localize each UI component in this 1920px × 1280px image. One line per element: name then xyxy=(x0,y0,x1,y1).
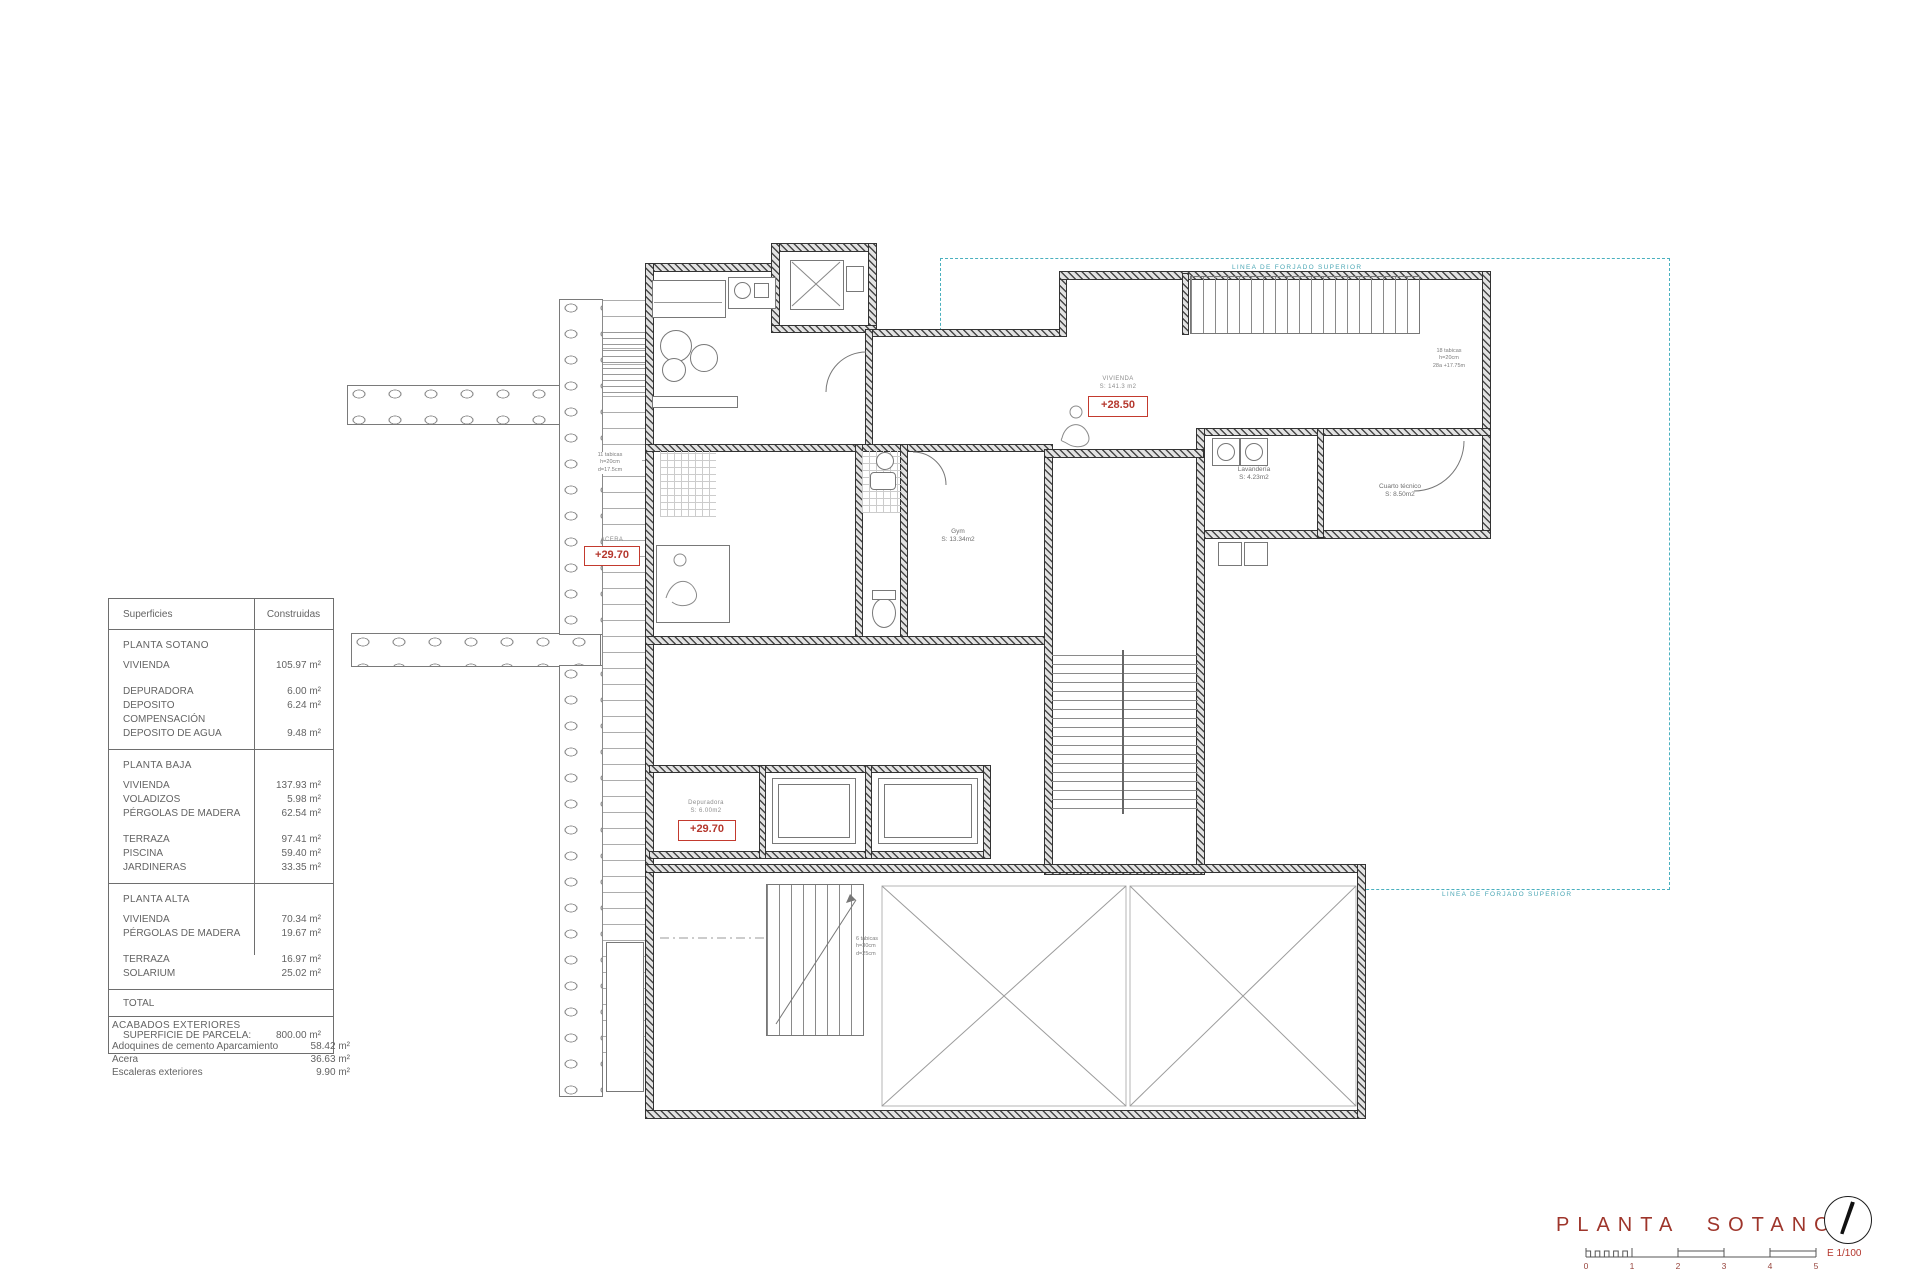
table-divider xyxy=(254,599,255,955)
exterior-stairs-top xyxy=(603,332,645,398)
acera-caption: ACERA xyxy=(584,537,640,545)
floor-garage xyxy=(646,865,1365,1118)
garage-stairs xyxy=(766,884,864,1036)
row-value: 33.35 m² xyxy=(255,861,333,875)
vivienda-caption-line: S: 141.3 m2 xyxy=(1082,384,1154,392)
wall-garage-bottom xyxy=(646,1111,1365,1118)
stair-note-line: d=17.5cm xyxy=(578,467,642,474)
row-label: DEPOSITO DE AGUA xyxy=(123,727,255,741)
wall-elevator-top xyxy=(772,244,876,251)
table-row: VIVIENDA70.34 m² xyxy=(123,913,333,927)
washer-drum-1 xyxy=(1217,443,1235,461)
wall-hall-top xyxy=(870,330,1066,336)
vivienda-caption: VIVIENDA S: 141.3 m2 xyxy=(1082,376,1154,392)
sheet-title: PLANTA SOTANO xyxy=(1556,1214,1836,1237)
cuarto-area: S: 8.50m2 xyxy=(1358,491,1442,499)
row-value: 36.63 m² xyxy=(311,1053,350,1066)
wall-stairwell-right xyxy=(1197,429,1204,874)
wall-elevator-bottom xyxy=(772,326,876,332)
kitchen-sink xyxy=(734,282,751,299)
section-title: PLANTA ALTA xyxy=(123,894,333,905)
table-row: DEPOSITO DE AGUA9.48 m² xyxy=(123,727,333,741)
total-row: TOTAL xyxy=(109,990,333,1017)
acabados-row: Adoquines de cemento Aparcamiento58.42 m… xyxy=(112,1040,350,1053)
table-row: VOLADIZOS5.98 m² xyxy=(123,793,333,807)
toilet-bowl xyxy=(872,598,896,628)
row-value: 105.97 m² xyxy=(255,659,333,673)
scale-tick-label: 1 xyxy=(1630,1261,1635,1271)
north-needle xyxy=(1840,1201,1855,1236)
col-construidas: Construidas xyxy=(254,609,333,620)
row-value: 5.98 m² xyxy=(255,793,333,807)
scale-tick-label: 4 xyxy=(1768,1261,1773,1271)
stairwell-treads xyxy=(1052,655,1198,810)
row-value: 6.24 m² xyxy=(255,699,333,727)
sauna-tiles xyxy=(660,451,716,517)
elevator-car xyxy=(790,260,844,310)
table-row: SOLARIUM25.02 m² xyxy=(123,967,333,981)
gym-area: S: 13.34m2 xyxy=(908,536,1008,544)
sofa xyxy=(652,280,726,318)
room-label-lavanderia: Lavandería S: 4.23m2 xyxy=(1219,466,1289,483)
row-label: Escaleras exteriores xyxy=(112,1066,316,1079)
table-row: TERRAZA97.41 m² xyxy=(123,833,333,847)
wall-wing-right xyxy=(1483,272,1490,538)
table-row: TERRAZA16.97 m² xyxy=(123,953,333,967)
section-planta-baja: PLANTA BAJA VIVIENDA137.93 m² VOLADIZOS5… xyxy=(109,750,333,884)
wall-living-hall-divider xyxy=(866,330,872,448)
wall-deposit-div2 xyxy=(866,766,871,858)
table-row: PÉRGOLAS DE MADERA19.67 m² xyxy=(123,927,333,941)
scale-steps xyxy=(1678,1251,1816,1257)
wall-deposits-top xyxy=(650,766,990,772)
row-label: PÉRGOLAS DE MADERA xyxy=(123,807,255,821)
wall-left-main xyxy=(646,264,653,1118)
row-value: 137.93 m² xyxy=(255,779,333,793)
row-value: 19.67 m² xyxy=(255,927,333,941)
table-row: DEPURADORA6.00 m² xyxy=(123,685,333,699)
depuradora-level: +29.70 xyxy=(678,820,736,841)
stair-note-line: h=30cm xyxy=(856,943,920,950)
stair-note-line: h=20cm xyxy=(578,459,642,466)
stair-note-line: 18 tabicas xyxy=(1414,348,1484,355)
cuarto-name: Cuarto técnico xyxy=(1358,483,1442,491)
wall-elevator-right xyxy=(869,244,876,332)
row-value: 59.40 m² xyxy=(255,847,333,861)
room-label-cuarto-tecnico: Cuarto técnico S: 8.50m2 xyxy=(1358,483,1442,500)
wall-top-living xyxy=(646,264,778,271)
row-label: VOLADIZOS xyxy=(123,793,255,807)
appliance-box-2 xyxy=(1244,542,1268,566)
staircase-upper xyxy=(1190,276,1420,334)
total-label: TOTAL xyxy=(123,998,154,1009)
row-value: 97.41 m² xyxy=(255,833,333,847)
scale-tick-label: 2 xyxy=(1676,1261,1681,1271)
stair-note-line: 6 tabicas xyxy=(856,936,920,943)
planter-box xyxy=(606,942,644,1092)
washer-drum-2 xyxy=(1245,443,1263,461)
wall-wing-bottom xyxy=(1197,531,1490,538)
acabados-row: Escaleras exteriores9.90 m² xyxy=(112,1066,350,1079)
wall-room-divider xyxy=(1318,429,1323,537)
row-label: TERRAZA xyxy=(123,953,255,967)
row-value: 16.97 m² xyxy=(255,953,333,967)
scale-tick-label: 3 xyxy=(1722,1261,1727,1271)
sofa-seat-line xyxy=(654,302,722,303)
row-label: JARDINERAS xyxy=(123,861,255,875)
wall-garage-right xyxy=(1358,865,1365,1118)
scale-bar: 0 1 2 3 4 5 xyxy=(1582,1240,1832,1274)
row-value: 70.34 m² xyxy=(255,913,333,927)
table-circle-2 xyxy=(690,344,718,372)
scale-tick-label: 5 xyxy=(1814,1261,1819,1271)
stair-note-line: 11 tabicas xyxy=(578,452,642,459)
lavanderia-name: Lavandería xyxy=(1219,466,1289,474)
table-row: VIVIENDA105.97 m² xyxy=(123,659,333,673)
row-label: DEPOSITO COMPENSACIÓN xyxy=(123,699,255,727)
room-label-gym: Gym S: 13.34m2 xyxy=(908,528,1008,545)
section-planta-sotano: PLANTA SOTANO VIVIENDA105.97 m² DEPURADO… xyxy=(109,630,333,750)
wall-deposits-bottom xyxy=(650,852,990,858)
table-row: VIVIENDA137.93 m² xyxy=(123,779,333,793)
row-value: 6.00 m² xyxy=(255,685,333,699)
table-row: PÉRGOLAS DE MADERA62.54 m² xyxy=(123,807,333,821)
wall-wing-rooms-top xyxy=(1197,429,1490,435)
col-superficies: Superficies xyxy=(109,609,254,620)
massage-table xyxy=(656,545,730,623)
wall-rooms-row-bottom xyxy=(646,637,1052,644)
row-label: DEPURADORA xyxy=(123,685,255,699)
vivienda-level: +28.50 xyxy=(1088,396,1148,417)
row-value: 62.54 m² xyxy=(255,807,333,821)
row-value: 9.48 m² xyxy=(255,727,333,741)
stone-wall-vertical-lower xyxy=(560,666,602,1096)
table-row: JARDINERAS33.35 m² xyxy=(123,861,333,875)
bath-sink xyxy=(876,452,894,470)
stair-note-line: 28a +17.75m xyxy=(1414,363,1484,370)
scale-comb xyxy=(1586,1251,1627,1257)
forjado-label-bottom: LINEA DE FORJADO SUPERIOR xyxy=(1442,891,1572,898)
acabados-row: Acera36.63 m² xyxy=(112,1053,350,1066)
depuradora-caption: Depuradora S: 6.00m2 xyxy=(670,800,742,816)
stairwell-stringer xyxy=(1122,650,1124,814)
stair-note-garage: 6 tabicas h=30cm d=25cm xyxy=(856,936,920,958)
table-row: PISCINA59.40 m² xyxy=(123,847,333,861)
row-label: VIVIENDA xyxy=(123,913,255,927)
stair-note-exterior: 11 tabicas h=20cm d=17.5cm xyxy=(578,452,642,474)
stair-note-interior: 18 tabicas h=20cm 28a +17.75m xyxy=(1414,348,1484,370)
deposit-tank-1-inner xyxy=(778,784,850,838)
row-value: 25.02 m² xyxy=(255,967,333,981)
table-header: Superficies Construidas xyxy=(109,599,333,630)
north-arrow xyxy=(1824,1196,1872,1244)
gym-name: Gym xyxy=(908,528,1008,536)
row-label: VIVIENDA xyxy=(123,659,255,673)
deposit-tank-2-inner xyxy=(884,784,972,838)
wall-stairwell-left xyxy=(1045,450,1052,874)
row-label: SOLARIUM xyxy=(123,967,255,981)
appliance-box-1 xyxy=(1218,542,1242,566)
row-value: 9.90 m² xyxy=(316,1066,350,1079)
scale-text: E 1/100 xyxy=(1827,1248,1861,1259)
sideboard xyxy=(652,396,738,408)
vivienda-caption-line: VIVIENDA xyxy=(1082,376,1154,384)
section-planta-alta: PLANTA ALTA VIVIENDA70.34 m² PÉRGOLAS DE… xyxy=(109,884,333,990)
scale-tick-label: 0 xyxy=(1584,1261,1589,1271)
section-title: PLANTA SOTANO xyxy=(123,640,333,651)
row-value: 58.42 m² xyxy=(311,1040,350,1053)
wall-step-up xyxy=(1060,272,1066,336)
acera-level: +29.70 xyxy=(584,546,640,566)
table-circle-3 xyxy=(662,358,686,382)
wall-stairwell-top xyxy=(1045,450,1203,457)
elevator-motor xyxy=(846,266,864,292)
acabados-title: ACABADOS EXTERIORES xyxy=(112,1020,350,1031)
depuradora-caption-line: S: 6.00m2 xyxy=(670,808,742,816)
row-label: PÉRGOLAS DE MADERA xyxy=(123,927,255,941)
stair-note-line: d=25cm xyxy=(856,951,920,958)
floor-hall xyxy=(866,330,1066,456)
surfaces-table: Superficies Construidas PLANTA SOTANO VI… xyxy=(108,598,334,1054)
section-title: PLANTA BAJA xyxy=(123,760,333,771)
row-label: PISCINA xyxy=(123,847,255,861)
kitchen-hob xyxy=(754,283,769,298)
wall-stair-enclosure xyxy=(1183,274,1188,334)
floor-plan-sheet: LINEA DE FORJADO SUPERIOR LINEA DE FORJA… xyxy=(0,0,1920,1280)
scale-ticks xyxy=(1586,1248,1816,1257)
table-row: DEPOSITO COMPENSACIÓN6.24 m² xyxy=(123,699,333,727)
toilet-tank xyxy=(872,590,896,600)
lavanderia-area: S: 4.23m2 xyxy=(1219,474,1289,482)
bath-vanity xyxy=(870,472,896,490)
stair-note-line: h=20cm xyxy=(1414,355,1484,362)
row-label: VIVIENDA xyxy=(123,779,255,793)
wall-deposit-div1 xyxy=(760,766,765,858)
depuradora-caption-line: Depuradora xyxy=(670,800,742,808)
wall-garage-top xyxy=(646,865,1365,872)
row-label: TERRAZA xyxy=(123,833,255,847)
stone-wall-mid-left xyxy=(352,634,600,666)
wall-deposit-right xyxy=(984,766,990,858)
acabados-exteriores: ACABADOS EXTERIORES Adoquines de cemento… xyxy=(112,1020,350,1079)
row-label: Adoquines de cemento Aparcamiento xyxy=(112,1040,311,1053)
row-label: Acera xyxy=(112,1053,311,1066)
forjado-label-top: LINEA DE FORJADO SUPERIOR xyxy=(1232,264,1362,271)
